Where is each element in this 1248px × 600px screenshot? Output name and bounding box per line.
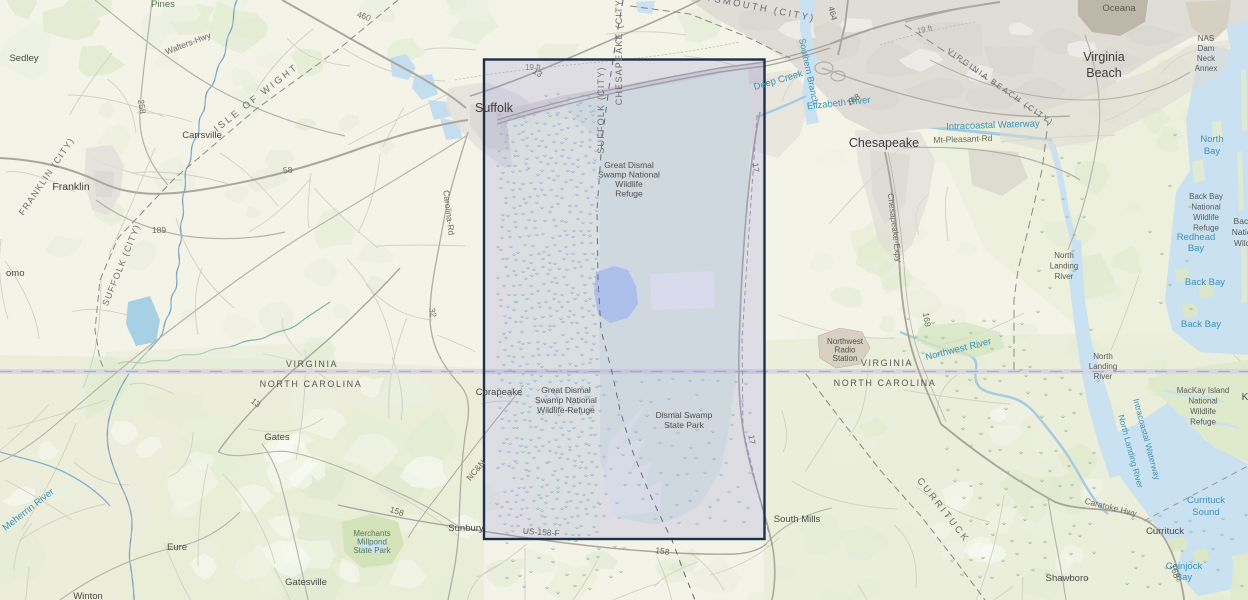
svg-text:Sunbury: Sunbury [448,523,484,534]
svg-text:NAS: NAS [1198,34,1214,43]
svg-text:CHESAPEAKE (CITY): CHESAPEAKE (CITY) [614,0,624,105]
svg-text:Back Bay: Back Bay [1189,192,1223,201]
svg-text:Bay: Bay [1188,243,1205,254]
svg-text:Eure: Eure [167,542,187,553]
svg-text:Annex: Annex [1195,64,1218,73]
svg-text:South Mills: South Mills [774,514,821,525]
svg-text:Gates: Gates [264,432,290,443]
svg-text:Bay: Bay [1204,146,1221,157]
svg-text:Great Dismal: Great Dismal [604,160,654,170]
svg-text:Gatesville: Gatesville [285,577,327,588]
svg-text:Winton: Winton [73,591,103,600]
svg-text:Currituck: Currituck [1187,495,1225,506]
svg-text:Suffolk: Suffolk [475,101,514,115]
svg-text:Dismal Swamp: Dismal Swamp [656,410,713,420]
svg-text:Back Bay: Back Bay [1181,319,1221,330]
svg-text:Wildlife: Wildlife [1193,213,1219,222]
svg-text:North: North [1093,352,1113,361]
svg-text:Franklin: Franklin [52,181,90,193]
svg-text:Dam: Dam [1198,44,1215,53]
svg-text:Back Bay: Back Bay [1185,277,1225,288]
svg-text:State Park: State Park [353,546,391,555]
svg-text:Wildlife-Refuge: Wildlife-Refuge [537,405,595,415]
svg-text:Station: Station [833,354,858,363]
svg-text:19 ft.: 19 ft. [525,63,543,72]
svg-text:Refuge: Refuge [615,189,643,199]
svg-text:State Park: State Park [664,420,704,430]
svg-text:VIRGINIA: VIRGINIA [861,358,913,368]
svg-text:MacKay Island: MacKay Island [1177,386,1229,395]
svg-text:Landing: Landing [1089,362,1117,371]
svg-text:Nation: Nation [1232,227,1248,237]
svg-text:North: North [1200,134,1223,145]
svg-text:Great Dismal: Great Dismal [541,385,591,395]
svg-text:National: National [1191,203,1221,212]
svg-text:189: 189 [152,225,166,235]
svg-text:17: 17 [750,162,761,173]
svg-text:Shawboro: Shawboro [1046,573,1089,584]
svg-text:Landing: Landing [1050,262,1078,271]
svg-text:Neck: Neck [1197,54,1216,63]
svg-text:Wildli: Wildli [1234,238,1248,248]
svg-text:168: 168 [921,312,933,328]
svg-text:158: 158 [655,545,671,557]
svg-text:VIRGINIA: VIRGINIA [286,359,338,369]
svg-text:Redhead: Redhead [1177,232,1216,243]
svg-text:Wildlife: Wildlife [1190,407,1216,416]
svg-text:Pines: Pines [151,0,175,10]
svg-text:58: 58 [282,165,293,176]
svg-text:17: 17 [746,434,757,445]
svg-text:Virginia: Virginia [1083,50,1125,64]
svg-text:Currituck: Currituck [1146,526,1184,537]
svg-text:Beach: Beach [1086,66,1121,80]
svg-text:Oceana: Oceana [1102,3,1136,14]
svg-text:Mt-Pleasant-Rd: Mt-Pleasant-Rd [933,133,993,145]
svg-text:Sedley: Sedley [9,53,38,64]
svg-text:North: North [1054,251,1074,260]
svg-text:Sound: Sound [1192,507,1219,518]
svg-text:SUFFOLK (CITY): SUFFOLK (CITY) [596,66,606,153]
svg-text:Swamp National: Swamp National [535,395,597,405]
svg-text:omo: omo [6,268,24,279]
svg-text:Chesapeake: Chesapeake [849,136,919,150]
svg-text:Corapeake: Corapeake [476,387,522,398]
svg-text:32: 32 [427,307,439,318]
svg-text:Back: Back [1234,216,1248,226]
svg-text:Swamp National: Swamp National [598,170,660,180]
svg-text:Refuge: Refuge [1190,418,1216,427]
svg-text:National: National [1188,397,1218,406]
svg-text:River: River [1055,272,1074,281]
svg-text:K: K [1242,392,1248,403]
svg-text:Wildlife: Wildlife [615,179,643,189]
svg-text:NORTH CAROLINA: NORTH CAROLINA [260,379,363,389]
svg-text:River: River [1094,372,1113,381]
svg-text:258: 258 [136,99,148,115]
svg-text:NORTH CAROLINA: NORTH CAROLINA [834,378,937,388]
